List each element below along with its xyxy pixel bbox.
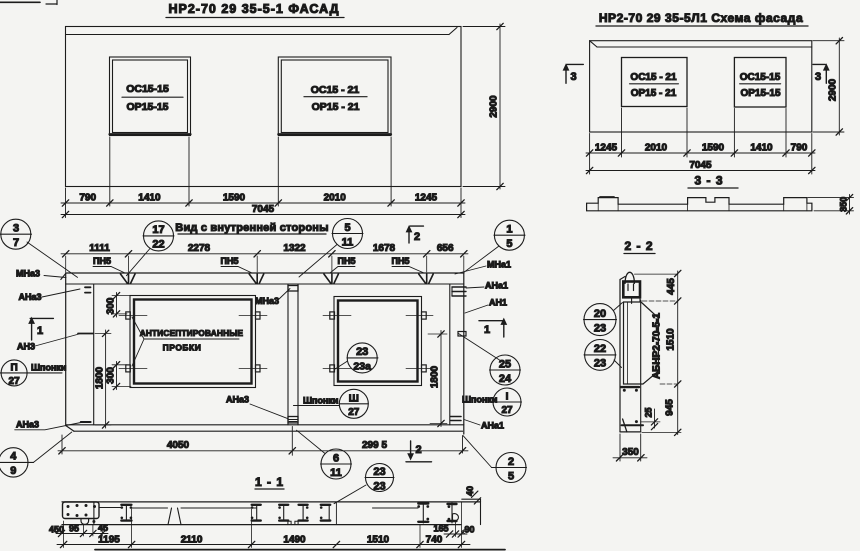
svg-text:22: 22 (152, 239, 164, 251)
svg-text:40: 40 (465, 486, 475, 496)
svg-text:ОР15 - 21: ОР15 - 21 (312, 101, 360, 113)
svg-text:ОР15-15: ОР15-15 (740, 88, 780, 99)
svg-text:1: 1 (484, 324, 490, 336)
svg-text:Шпонки: Шпонки (31, 363, 66, 373)
svg-text:1: 1 (37, 325, 43, 337)
svg-text:790: 790 (79, 193, 96, 204)
svg-text:Ш: Ш (349, 393, 359, 404)
svg-text:1322: 1322 (283, 243, 306, 254)
svg-text:ПН5: ПН5 (93, 256, 111, 266)
svg-text:17: 17 (152, 224, 164, 236)
svg-text:350: 350 (622, 447, 639, 458)
svg-text:1678: 1678 (373, 243, 396, 254)
svg-text:7045: 7045 (252, 204, 275, 215)
svg-text:АНТИСЕПТИРОВАННЫЕ: АНТИСЕПТИРОВАННЫЕ (140, 329, 244, 338)
svg-text:АНа1: АНа1 (481, 421, 504, 431)
svg-text:1195: 1195 (98, 535, 120, 546)
svg-text:МНа1: МНа1 (487, 260, 511, 270)
svg-text:300: 300 (106, 367, 117, 384)
svg-text:5: 5 (506, 238, 512, 250)
svg-text:МНа3: МНа3 (255, 296, 279, 306)
svg-text:ОР15 - 21: ОР15 - 21 (631, 88, 677, 99)
svg-text:6: 6 (333, 452, 339, 464)
svg-text:7045: 7045 (689, 160, 712, 171)
svg-text:2: 2 (415, 444, 421, 456)
svg-text:4050: 4050 (167, 440, 190, 451)
svg-text:740: 740 (426, 535, 443, 546)
svg-text:350: 350 (839, 197, 849, 212)
svg-text:1510: 1510 (666, 328, 677, 351)
svg-text:АНа3: АНа3 (19, 292, 42, 302)
svg-text:25: 25 (644, 407, 654, 417)
svg-text:ОР15-15: ОР15-15 (126, 101, 168, 113)
svg-text:9: 9 (10, 465, 16, 477)
svg-text:23: 23 (373, 466, 385, 478)
svg-text:90: 90 (465, 525, 475, 535)
svg-text:АБНР2-70-5-1: АБНР2-70-5-1 (652, 313, 663, 380)
svg-text:790: 790 (791, 143, 808, 154)
svg-text:1590: 1590 (223, 193, 246, 204)
svg-text:1245: 1245 (595, 143, 618, 154)
svg-text:П: П (11, 362, 18, 373)
svg-text:I: I (506, 392, 509, 403)
svg-text:Шпонки: Шпонки (303, 396, 338, 406)
svg-text:23а: 23а (353, 361, 371, 373)
svg-text:2010: 2010 (324, 193, 347, 204)
svg-text:1800: 1800 (430, 365, 441, 388)
svg-text:945: 945 (664, 399, 675, 416)
svg-text:3: 3 (570, 71, 576, 83)
svg-text:5: 5 (508, 470, 514, 482)
svg-text:1: 1 (506, 224, 512, 236)
svg-text:23: 23 (373, 480, 385, 492)
svg-text:2010: 2010 (645, 143, 668, 154)
svg-text:23: 23 (594, 322, 606, 334)
svg-text:1 - 1: 1 - 1 (255, 475, 284, 489)
svg-text:300: 300 (106, 297, 117, 314)
svg-text:ОС15 - 21: ОС15 - 21 (311, 84, 360, 96)
svg-text:11: 11 (330, 467, 342, 479)
svg-text:450: 450 (49, 525, 64, 535)
svg-text:7: 7 (13, 237, 19, 249)
svg-text:1410: 1410 (138, 193, 161, 204)
svg-text:1490: 1490 (283, 535, 306, 546)
svg-text:299 5: 299 5 (362, 440, 387, 451)
svg-text:27: 27 (9, 376, 21, 387)
svg-text:Вид с внутренней стороны: Вид с внутренней стороны (175, 222, 328, 234)
svg-text:3 - 3: 3 - 3 (694, 174, 723, 188)
svg-text:ОС15-15: ОС15-15 (740, 72, 781, 83)
svg-text:11: 11 (342, 236, 354, 248)
svg-text:2: 2 (414, 231, 420, 243)
svg-text:АН3: АН3 (17, 342, 35, 352)
svg-text:НР2-70 29 35-5-1 ФАСАД: НР2-70 29 35-5-1 ФАСАД (168, 2, 339, 16)
svg-text:3: 3 (13, 223, 19, 235)
svg-text:2900: 2900 (828, 78, 839, 101)
svg-text:ПН5: ПН5 (221, 256, 239, 266)
svg-text:4: 4 (10, 451, 17, 463)
svg-text:1245: 1245 (415, 193, 438, 204)
svg-text:АНа3: АНа3 (16, 420, 39, 430)
svg-text:АНа3: АНа3 (226, 395, 249, 405)
svg-text:АН1: АН1 (489, 298, 507, 308)
svg-text:45: 45 (98, 523, 108, 533)
svg-text:95: 95 (69, 524, 79, 534)
svg-text:1410: 1410 (750, 143, 773, 154)
svg-text:МНа3: МНа3 (16, 269, 40, 279)
svg-text:20: 20 (594, 308, 606, 320)
svg-text:АНа1: АНа1 (485, 281, 508, 291)
svg-text:2 - 2: 2 - 2 (624, 239, 653, 253)
svg-text:1111: 1111 (89, 243, 110, 254)
svg-text:1800: 1800 (95, 366, 106, 389)
svg-text:27: 27 (501, 405, 513, 416)
svg-text:1590: 1590 (702, 143, 725, 154)
svg-text:22: 22 (594, 343, 606, 355)
svg-text:НР2-70 29 35-5Л1 Схема фасада: НР2-70 29 35-5Л1 Схема фасада (599, 11, 803, 25)
svg-text:445: 445 (666, 278, 677, 295)
svg-text:2110: 2110 (181, 535, 203, 546)
svg-text:27: 27 (348, 407, 360, 418)
svg-text:ПН5: ПН5 (392, 256, 410, 266)
svg-text:2278: 2278 (188, 243, 211, 254)
svg-text:ОС15 - 21: ОС15 - 21 (630, 72, 677, 83)
svg-text:Шпонки: Шпонки (462, 395, 497, 405)
svg-text:5: 5 (344, 222, 350, 234)
svg-text:25: 25 (499, 358, 511, 370)
svg-text:ПРОБКИ: ПРОБКИ (163, 343, 202, 353)
svg-text:165: 165 (433, 524, 448, 534)
svg-text:23: 23 (356, 346, 368, 358)
svg-text:2: 2 (508, 456, 514, 468)
svg-text:ОС15-15: ОС15-15 (126, 83, 169, 95)
svg-text:2900: 2900 (489, 95, 500, 118)
svg-text:ПН5: ПН5 (338, 256, 356, 266)
svg-text:1510: 1510 (367, 535, 390, 546)
svg-text:3: 3 (815, 71, 821, 83)
svg-text:23: 23 (594, 358, 606, 370)
svg-text:656: 656 (437, 243, 454, 254)
svg-text:24: 24 (499, 373, 512, 385)
